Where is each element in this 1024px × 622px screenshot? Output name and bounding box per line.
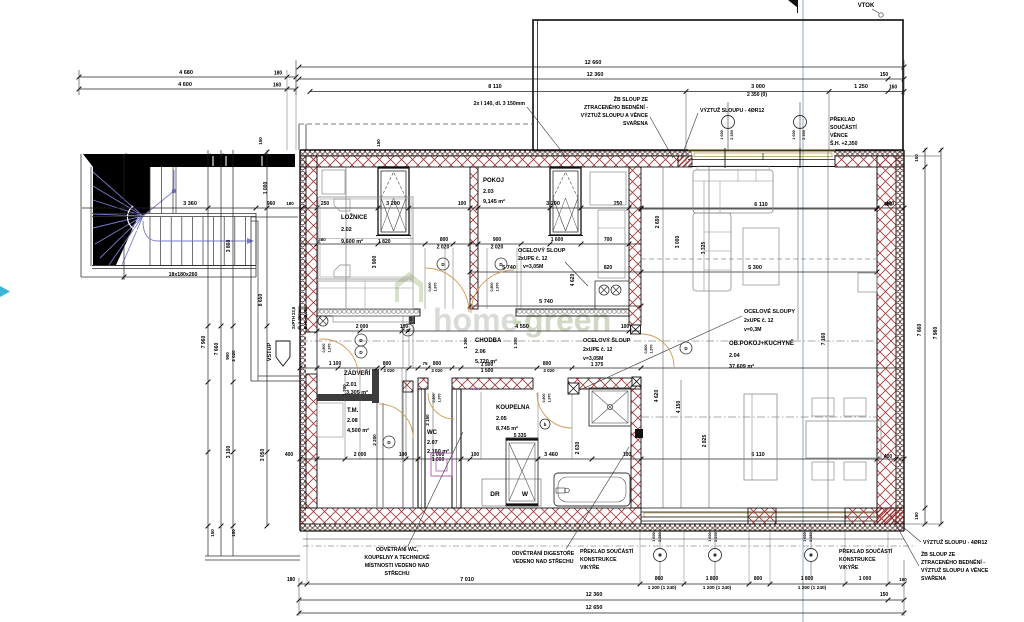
svg-text:1 820: 1 820 xyxy=(378,239,391,245)
svg-text:WC: WC xyxy=(427,430,438,436)
svg-text:100: 100 xyxy=(471,452,480,458)
svg-text:2xUPE č. 12: 2xUPE č. 12 xyxy=(583,347,613,353)
svg-text:3 000: 3 000 xyxy=(675,236,681,249)
svg-text:7 660: 7 660 xyxy=(214,343,220,356)
svg-text:KOUPELNA: KOUPELNA xyxy=(496,405,530,411)
svg-text:75: 75 xyxy=(422,361,428,366)
svg-text:1 600: 1 600 xyxy=(551,237,564,243)
svg-text:4,500 m²: 4,500 m² xyxy=(347,427,369,434)
svg-text:250: 250 xyxy=(321,201,330,207)
svg-text:2 020: 2 020 xyxy=(491,245,504,251)
svg-text:150: 150 xyxy=(210,529,215,537)
svg-text:2xUPE č. 12: 2xUPE č. 12 xyxy=(518,256,548,262)
svg-text:150: 150 xyxy=(258,137,263,145)
svg-text:KOUPELNY A TECHNICKÉ: KOUPELNY A TECHNICKÉ xyxy=(364,553,430,561)
svg-text:1 600: 1 600 xyxy=(708,532,712,542)
svg-text:3 000: 3 000 xyxy=(751,84,765,90)
svg-text:2xUPE č. 12: 2xUPE č. 12 xyxy=(744,318,774,324)
svg-text:W: W xyxy=(522,491,529,498)
svg-text:3 900: 3 900 xyxy=(372,256,378,269)
svg-text:180: 180 xyxy=(286,201,294,206)
svg-text:0,800: 0,800 xyxy=(322,344,326,353)
svg-text:1 600: 1 600 xyxy=(652,532,656,542)
svg-text:2 825: 2 825 xyxy=(702,435,708,448)
svg-text:ŽB SLOUP ZE: ŽB SLOUP ZE xyxy=(614,95,649,103)
svg-text:5 740: 5 740 xyxy=(539,299,553,305)
svg-text:400: 400 xyxy=(285,452,294,458)
svg-text:2 250: 2 250 xyxy=(372,434,377,446)
svg-text:1 000: 1 000 xyxy=(859,576,872,582)
svg-text:860: 860 xyxy=(655,576,664,582)
svg-text:ODVĚTRÁNÍ DIGESTOŘE: ODVĚTRÁNÍ DIGESTOŘE xyxy=(512,549,575,557)
svg-text:8 650: 8 650 xyxy=(258,294,264,307)
svg-text:800: 800 xyxy=(543,361,552,367)
svg-text:2 000: 2 000 xyxy=(356,324,369,330)
svg-text:1 200 (1 240): 1 200 (1 240) xyxy=(798,585,827,591)
svg-text:2.01: 2.01 xyxy=(346,382,357,388)
svg-text:180: 180 xyxy=(287,577,296,583)
svg-text:2 150: 2 150 xyxy=(425,414,430,426)
svg-text:2 650: 2 650 xyxy=(655,216,661,229)
svg-text:2.06: 2.06 xyxy=(475,349,486,355)
svg-text:800: 800 xyxy=(433,361,442,367)
svg-text:VÝZTUŽ SLOUPU A VĚNCE: VÝZTUŽ SLOUPU A VĚNCE xyxy=(581,111,649,119)
svg-text:150: 150 xyxy=(880,72,889,78)
svg-text:6 110: 6 110 xyxy=(754,202,767,208)
svg-text:9,600 m²: 9,600 m² xyxy=(341,238,363,245)
svg-text:2.08: 2.08 xyxy=(347,418,358,424)
svg-text:1 000: 1 000 xyxy=(263,182,269,195)
svg-text:4 600: 4 600 xyxy=(178,82,192,88)
svg-text:7 960: 7 960 xyxy=(201,336,207,349)
svg-text:VĚNCE: VĚNCE xyxy=(830,131,848,139)
svg-text:1 250: 1 250 xyxy=(854,84,868,90)
svg-text:VIKÝŘE: VIKÝŘE xyxy=(580,563,600,571)
svg-text:800: 800 xyxy=(440,237,449,243)
svg-text:2 020: 2 020 xyxy=(437,245,450,251)
svg-text:ZTRACENÉHO BEDNĚNÍ -: ZTRACENÉHO BEDNĚNÍ - xyxy=(584,103,648,111)
svg-text:1,970: 1,970 xyxy=(328,344,332,353)
svg-text:v=0,3M: v=0,3M xyxy=(744,327,761,333)
svg-text:3,305 m²: 3,305 m² xyxy=(346,389,368,396)
svg-text:12 360: 12 360 xyxy=(587,72,604,78)
svg-text:ŽB SLOUP ZE: ŽB SLOUP ZE xyxy=(921,550,956,558)
svg-text:VIKÝŘE: VIKÝŘE xyxy=(839,563,859,571)
svg-text:100: 100 xyxy=(621,324,630,330)
svg-text:160: 160 xyxy=(899,577,907,582)
svg-text:1 300: 1 300 xyxy=(463,337,468,349)
svg-text:2 630: 2 630 xyxy=(575,442,581,455)
svg-text:7 010: 7 010 xyxy=(460,577,474,583)
svg-text:7 660: 7 660 xyxy=(917,324,923,337)
svg-text:2 350: 2 350 xyxy=(730,130,734,140)
svg-text:400: 400 xyxy=(886,201,895,207)
svg-text:KONSTRUKCE: KONSTRUKCE xyxy=(839,557,876,563)
svg-text:2.04: 2.04 xyxy=(729,353,741,359)
svg-text:v=3,05M: v=3,05M xyxy=(583,356,603,362)
svg-text:3 100: 3 100 xyxy=(226,446,232,459)
svg-text:1 100: 1 100 xyxy=(329,361,342,367)
svg-text:960: 960 xyxy=(267,201,276,207)
svg-text:3 360: 3 360 xyxy=(183,201,197,207)
svg-text:12 650: 12 650 xyxy=(586,605,603,611)
svg-text:0,800: 0,800 xyxy=(542,394,546,403)
svg-text:4 680: 4 680 xyxy=(179,70,193,76)
svg-text:0,800: 0,800 xyxy=(432,394,436,403)
svg-text:160: 160 xyxy=(889,85,898,91)
svg-text:12 660: 12 660 xyxy=(585,60,602,66)
svg-text:2,160 m²: 2,160 m² xyxy=(427,448,449,455)
svg-text:KONSTRUKCE: KONSTRUKCE xyxy=(580,557,617,563)
svg-text:2.07: 2.07 xyxy=(427,440,438,446)
svg-text:9,145 m²: 9,145 m² xyxy=(483,198,505,205)
svg-text:9 100: 9 100 xyxy=(472,387,481,391)
svg-text:SVAŘENA: SVAŘENA xyxy=(623,119,648,127)
svg-text:18x180x260: 18x180x260 xyxy=(169,272,198,278)
svg-text:Š.H. +2,350: Š.H. +2,350 xyxy=(830,139,858,147)
svg-text:380: 380 xyxy=(318,237,326,242)
svg-text:2.05: 2.05 xyxy=(496,416,507,422)
svg-text:1 600: 1 600 xyxy=(720,130,724,140)
svg-text:150: 150 xyxy=(376,139,381,147)
svg-text:5,720 m²: 5,720 m² xyxy=(475,358,497,365)
svg-text:1 600: 1 600 xyxy=(803,532,807,542)
svg-text:2 250: 2 250 xyxy=(714,532,718,542)
svg-text:8 110: 8 110 xyxy=(488,84,501,90)
svg-text:2 020: 2 020 xyxy=(431,368,443,373)
svg-text:0,800: 0,800 xyxy=(428,283,432,292)
svg-text:2.02: 2.02 xyxy=(341,227,352,233)
svg-text:2.03: 2.03 xyxy=(483,189,494,195)
svg-text:1,970: 1,970 xyxy=(496,283,500,292)
svg-text:3 460: 3 460 xyxy=(544,452,558,458)
svg-text:1,970: 1,970 xyxy=(434,283,438,292)
svg-text:ZTRACENÉHO BEDNĚNÍ -: ZTRACENÉHO BEDNĚNÍ - xyxy=(921,558,985,566)
svg-text:4 550: 4 550 xyxy=(515,324,529,330)
svg-text:green: green xyxy=(524,302,611,338)
svg-text:37,609 m²: 37,609 m² xyxy=(729,363,754,370)
svg-text:CHODBA: CHODBA xyxy=(475,338,502,344)
svg-text:100: 100 xyxy=(458,201,467,207)
svg-text:160: 160 xyxy=(273,83,282,89)
svg-text:POKOJ: POKOJ xyxy=(483,178,504,184)
svg-text:VÝZTUŽ SLOUPU A VĚNCE: VÝZTUŽ SLOUPU A VĚNCE xyxy=(921,566,989,574)
svg-text:7 980: 7 980 xyxy=(933,327,939,340)
svg-text:VEDENO NAD STŘECHU: VEDENO NAD STŘECHU xyxy=(512,557,573,565)
svg-text:1,970: 1,970 xyxy=(438,394,442,403)
svg-text:800: 800 xyxy=(754,576,763,582)
svg-text:1 800: 1 800 xyxy=(706,576,719,582)
svg-text:PŘEKLAD: PŘEKLAD xyxy=(830,115,855,123)
svg-text:OCELOVÝ SLOUP: OCELOVÝ SLOUP xyxy=(518,247,566,254)
svg-text:1 500: 1 500 xyxy=(481,368,494,374)
svg-text:2x I 140, dl. 3 150mm: 2x I 140, dl. 3 150mm xyxy=(474,101,526,107)
svg-text:0,800: 0,800 xyxy=(644,345,648,354)
svg-text:PŘEKLAD SOUČÁSTÍ: PŘEKLAD SOUČÁSTÍ xyxy=(580,547,634,555)
svg-text:800: 800 xyxy=(383,361,392,367)
svg-text:1 300: 1 300 xyxy=(513,337,518,349)
svg-text:900: 900 xyxy=(493,237,502,243)
svg-text:6 110: 6 110 xyxy=(751,452,764,458)
svg-text:VÝZTUŽ SLOUPU - 4ØR12: VÝZTUŽ SLOUPU - 4ØR12 xyxy=(700,106,764,114)
svg-text:B.H. +2,000: B.H. +2,000 xyxy=(303,306,308,329)
svg-text:VÝZTUŽ SLOUPU - 4ØR12: VÝZTUŽ SLOUPU - 4ØR12 xyxy=(923,538,987,546)
svg-text:150: 150 xyxy=(231,529,236,537)
svg-text:1 800: 1 800 xyxy=(801,576,814,582)
svg-text:DR: DR xyxy=(490,491,500,498)
svg-text:1 200 (1 240): 1 200 (1 240) xyxy=(648,585,677,591)
svg-text:150: 150 xyxy=(914,154,919,162)
svg-text:4 620: 4 620 xyxy=(570,274,576,287)
svg-text:2 350: 2 350 xyxy=(802,130,806,140)
svg-text:7 160: 7 160 xyxy=(821,333,827,346)
svg-text:MÍSTNOSTI VEDENO NAD: MÍSTNOSTI VEDENO NAD xyxy=(365,561,430,569)
svg-text:1 200 (1 240): 1 200 (1 240) xyxy=(703,585,732,591)
svg-text:1,970: 1,970 xyxy=(548,394,552,403)
svg-text:8,745 m²: 8,745 m² xyxy=(496,425,518,432)
svg-text:12 360: 12 360 xyxy=(586,592,603,598)
svg-text:0,800: 0,800 xyxy=(490,283,494,292)
svg-text:dl. 1 250mm: dl. 1 250mm xyxy=(297,306,302,330)
svg-text:1,970: 1,970 xyxy=(650,345,654,354)
svg-text:ODVĚTRÁNÍ WC,: ODVĚTRÁNÍ WC, xyxy=(376,545,419,553)
svg-text:3 050: 3 050 xyxy=(260,449,266,462)
svg-text:3 200: 3 200 xyxy=(546,201,560,207)
svg-text:2 350 (0): 2 350 (0) xyxy=(747,92,767,98)
svg-text:VTOK: VTOK xyxy=(858,3,875,9)
svg-text:STŘECHU: STŘECHU xyxy=(384,569,409,577)
svg-text:180: 180 xyxy=(274,71,283,77)
svg-text:v=3,05M: v=3,05M xyxy=(523,264,543,270)
svg-text:1 600: 1 600 xyxy=(792,130,796,140)
svg-text:820: 820 xyxy=(604,265,613,271)
svg-text:900: 900 xyxy=(225,352,230,360)
svg-text:3xPTH 23,8: 3xPTH 23,8 xyxy=(291,306,296,329)
svg-text:250: 250 xyxy=(614,201,623,207)
svg-text:OB.POKOJ+KUCHYNĚ: OB.POKOJ+KUCHYNĚ xyxy=(729,339,794,347)
svg-text:OCELOVÉ SLOUPY: OCELOVÉ SLOUPY xyxy=(744,307,795,315)
svg-text:1 000: 1 000 xyxy=(432,457,445,463)
svg-text:LOŽNICE: LOŽNICE xyxy=(341,213,367,221)
svg-text:VSTUP: VSTUP xyxy=(267,343,273,362)
svg-text:2 020: 2 020 xyxy=(383,368,395,373)
svg-text:5 300: 5 300 xyxy=(748,265,762,271)
svg-text:1 375: 1 375 xyxy=(591,362,604,368)
svg-text:150: 150 xyxy=(914,512,919,520)
svg-text:PŘEKLAD SOUČÁSTÍ: PŘEKLAD SOUČÁSTÍ xyxy=(839,547,893,555)
svg-text:4 150: 4 150 xyxy=(676,401,682,414)
svg-text:T.M.: T.M. xyxy=(347,408,359,414)
svg-text:3 200: 3 200 xyxy=(386,201,400,207)
svg-text:OCELOVÝ ŠLOUP: OCELOVÝ ŠLOUP xyxy=(583,336,631,344)
svg-text:b: b xyxy=(544,422,547,427)
svg-text:SOUČÁSTÍ: SOUČÁSTÍ xyxy=(830,123,857,131)
svg-text:700: 700 xyxy=(604,237,613,243)
svg-text:150: 150 xyxy=(880,592,889,598)
svg-text:4 620: 4 620 xyxy=(654,390,660,403)
svg-text:SVAŘENA: SVAŘENA xyxy=(921,574,946,582)
svg-text:3 860: 3 860 xyxy=(226,240,232,253)
svg-text:2 020: 2 020 xyxy=(231,350,236,362)
svg-text:2 020: 2 020 xyxy=(543,368,555,373)
